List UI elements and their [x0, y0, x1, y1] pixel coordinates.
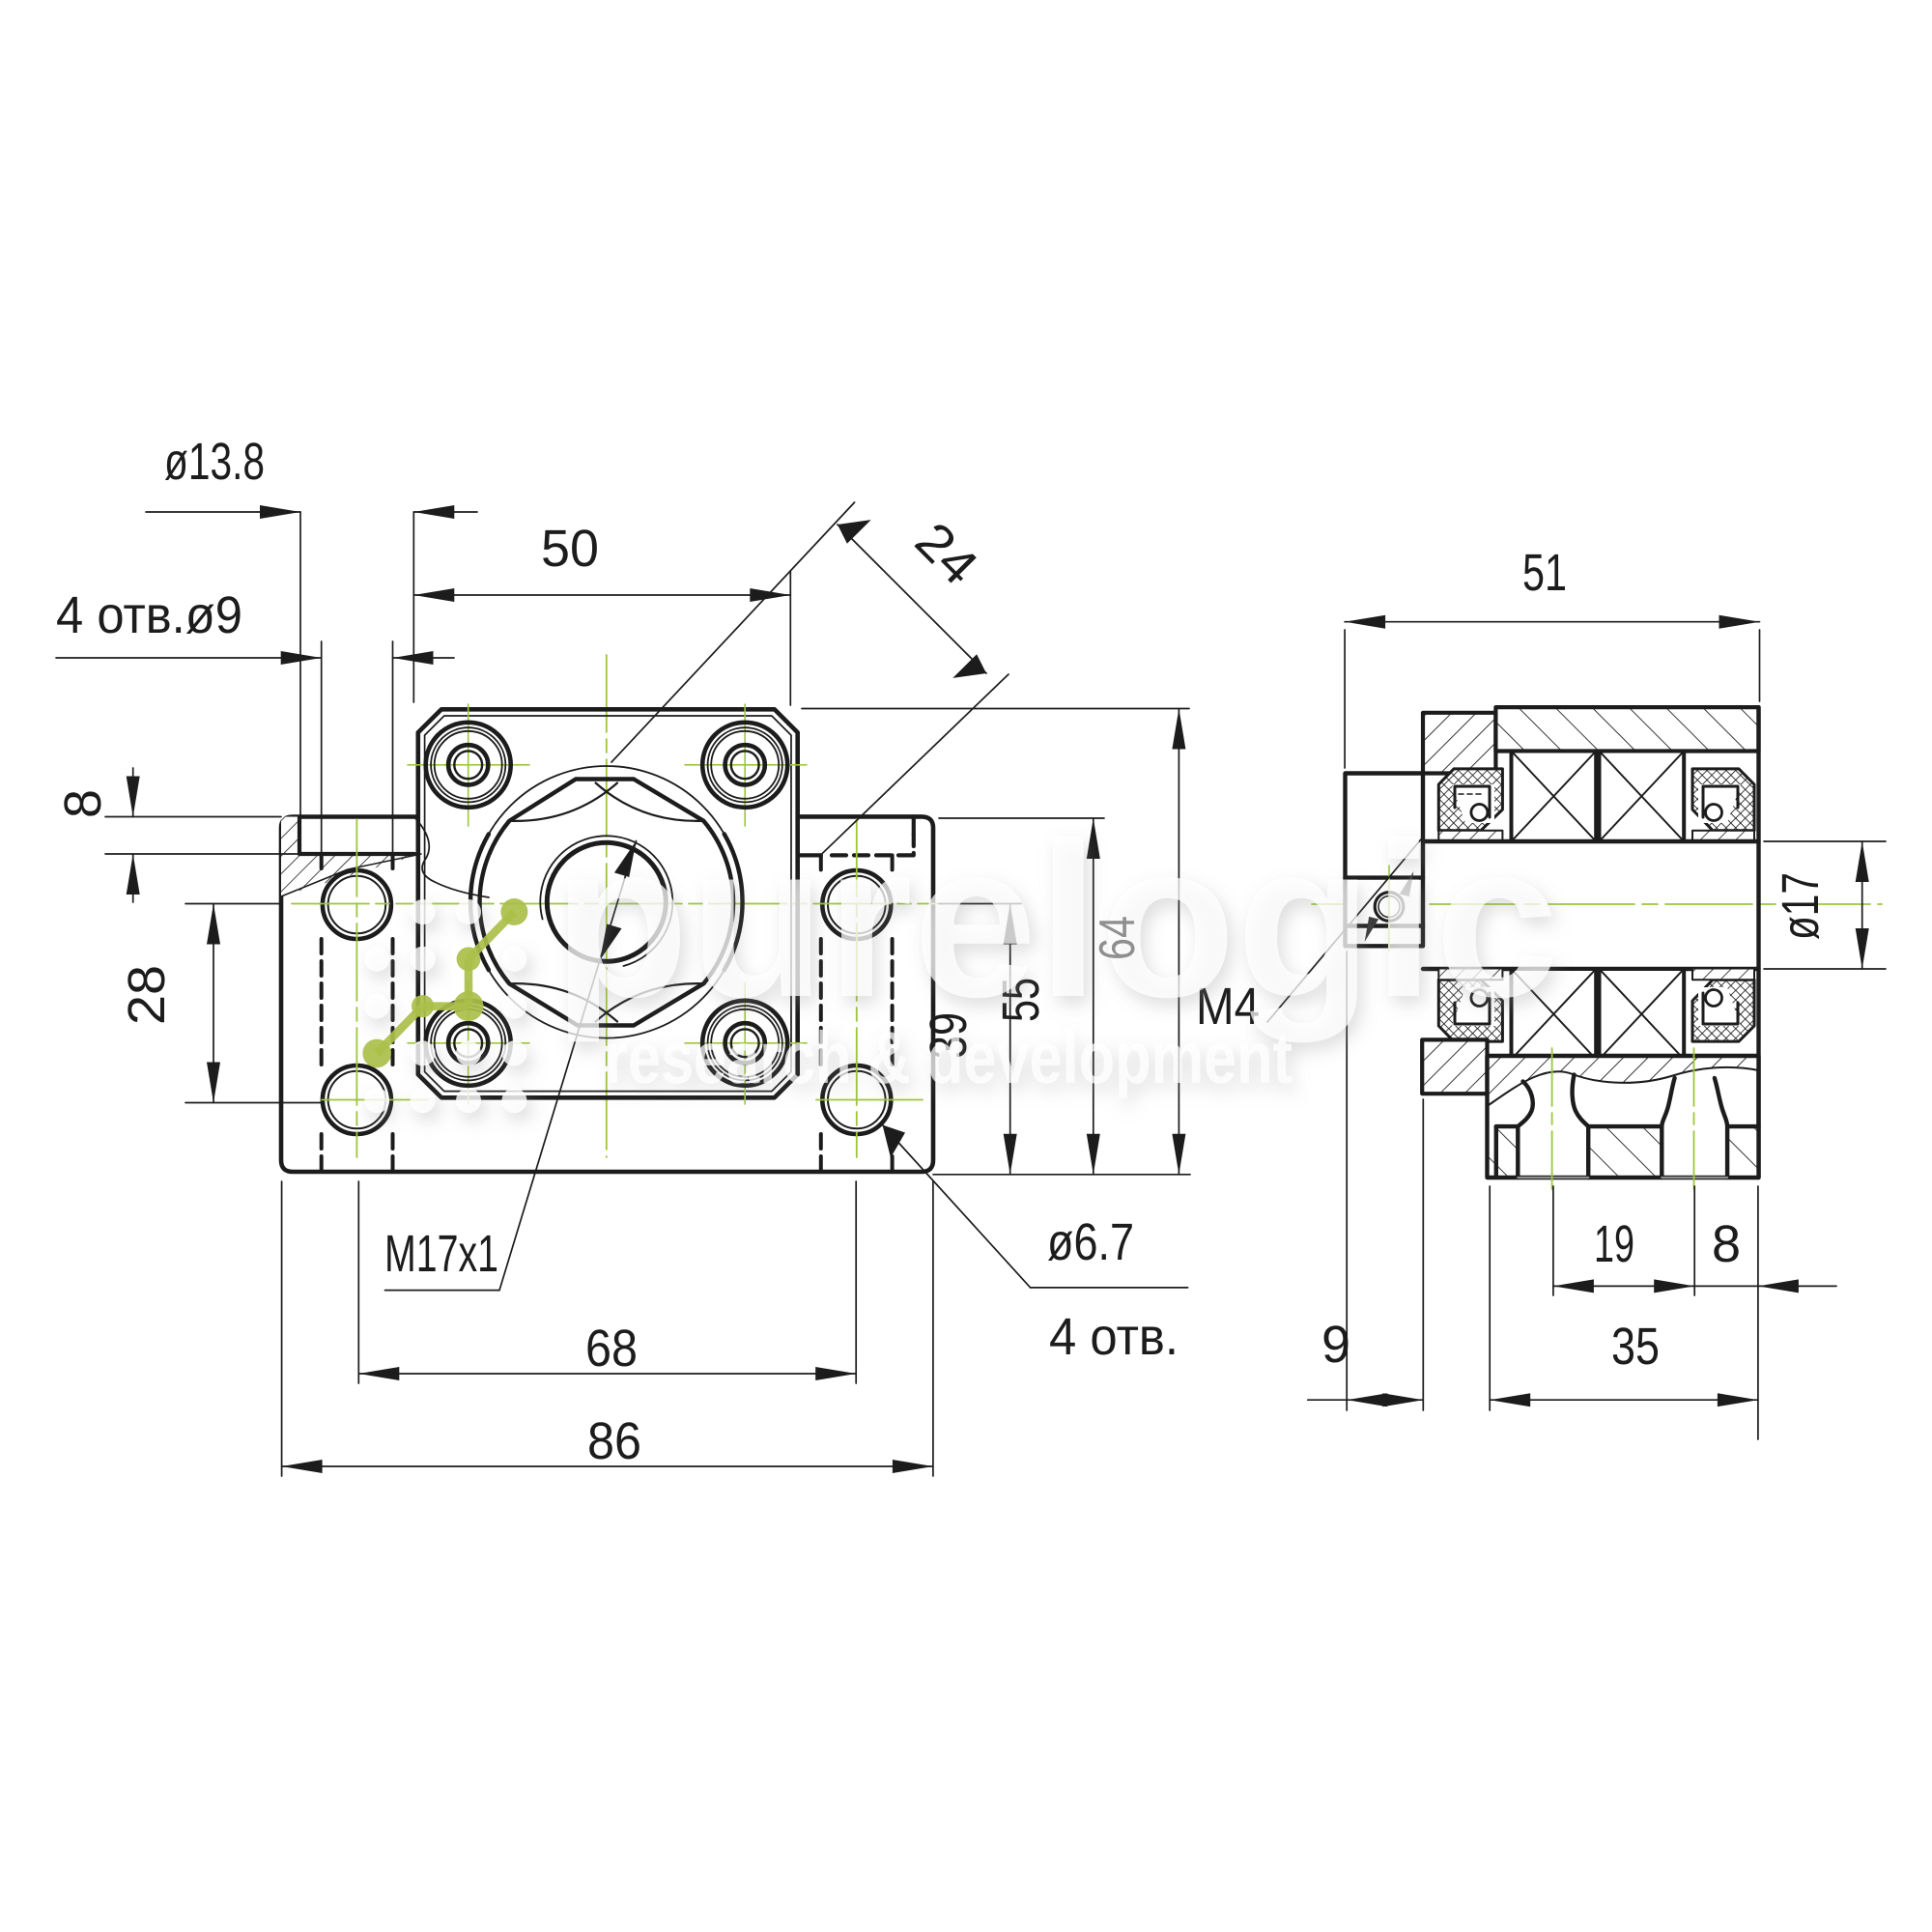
svg-text:M17x1: M17x1 — [384, 1225, 498, 1283]
svg-text:8: 8 — [1712, 1215, 1741, 1273]
svg-text:64: 64 — [1090, 916, 1146, 960]
svg-text:ø17: ø17 — [1772, 872, 1830, 940]
svg-text:8: 8 — [54, 789, 112, 818]
svg-text:35: 35 — [1611, 1318, 1660, 1376]
svg-text:68: 68 — [585, 1320, 638, 1378]
svg-text:9: 9 — [1321, 1316, 1350, 1374]
svg-text:4 отв.ø9: 4 отв.ø9 — [56, 586, 242, 644]
svg-text:50: 50 — [541, 520, 599, 578]
svg-text:research & development: research & development — [605, 1017, 1293, 1099]
svg-text:4 отв.: 4 отв. — [1049, 1308, 1179, 1366]
svg-text:purelogic: purelogic — [553, 798, 1559, 1043]
svg-text:ø13.8: ø13.8 — [164, 433, 265, 491]
svg-text:86: 86 — [587, 1412, 641, 1470]
svg-text:28: 28 — [118, 965, 176, 1025]
svg-text:19: 19 — [1594, 1215, 1634, 1273]
svg-text:51: 51 — [1522, 544, 1567, 602]
svg-text:ø6.7: ø6.7 — [1047, 1213, 1134, 1271]
